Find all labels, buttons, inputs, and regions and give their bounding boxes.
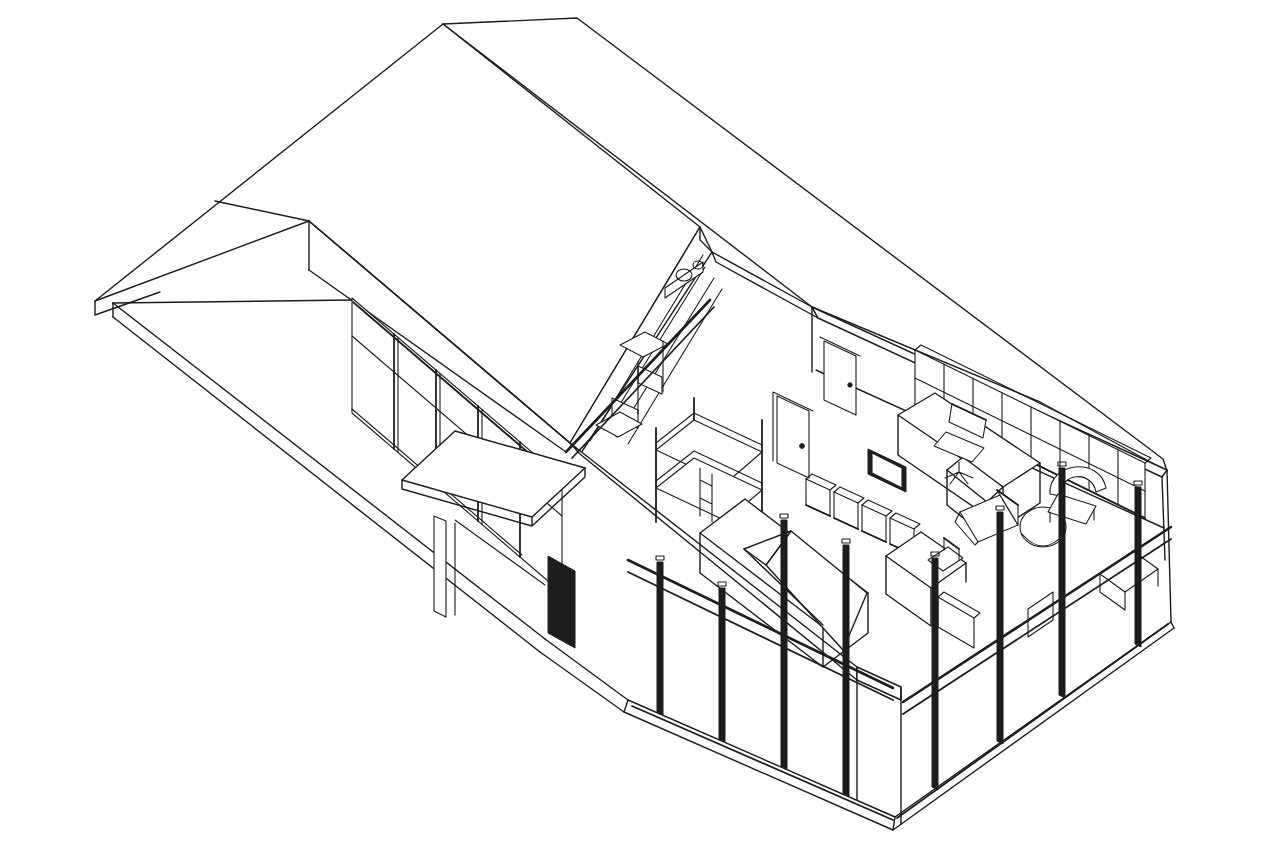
door-handle xyxy=(800,444,805,449)
wall-stub-top xyxy=(857,667,901,700)
interior-door-b xyxy=(820,337,860,415)
tv-panel xyxy=(868,449,906,492)
door-handle xyxy=(848,383,852,387)
drawing-canvas: Sectional axonometric cutaway drawing of… xyxy=(0,0,1280,847)
sill-rail-front xyxy=(632,706,893,820)
porch-column xyxy=(434,516,446,617)
nightstand xyxy=(938,592,980,648)
entry-door xyxy=(548,556,575,648)
interior-door-a xyxy=(773,392,813,478)
axonometric-house-drawing: Sectional axonometric cutaway drawing of… xyxy=(0,0,1280,847)
